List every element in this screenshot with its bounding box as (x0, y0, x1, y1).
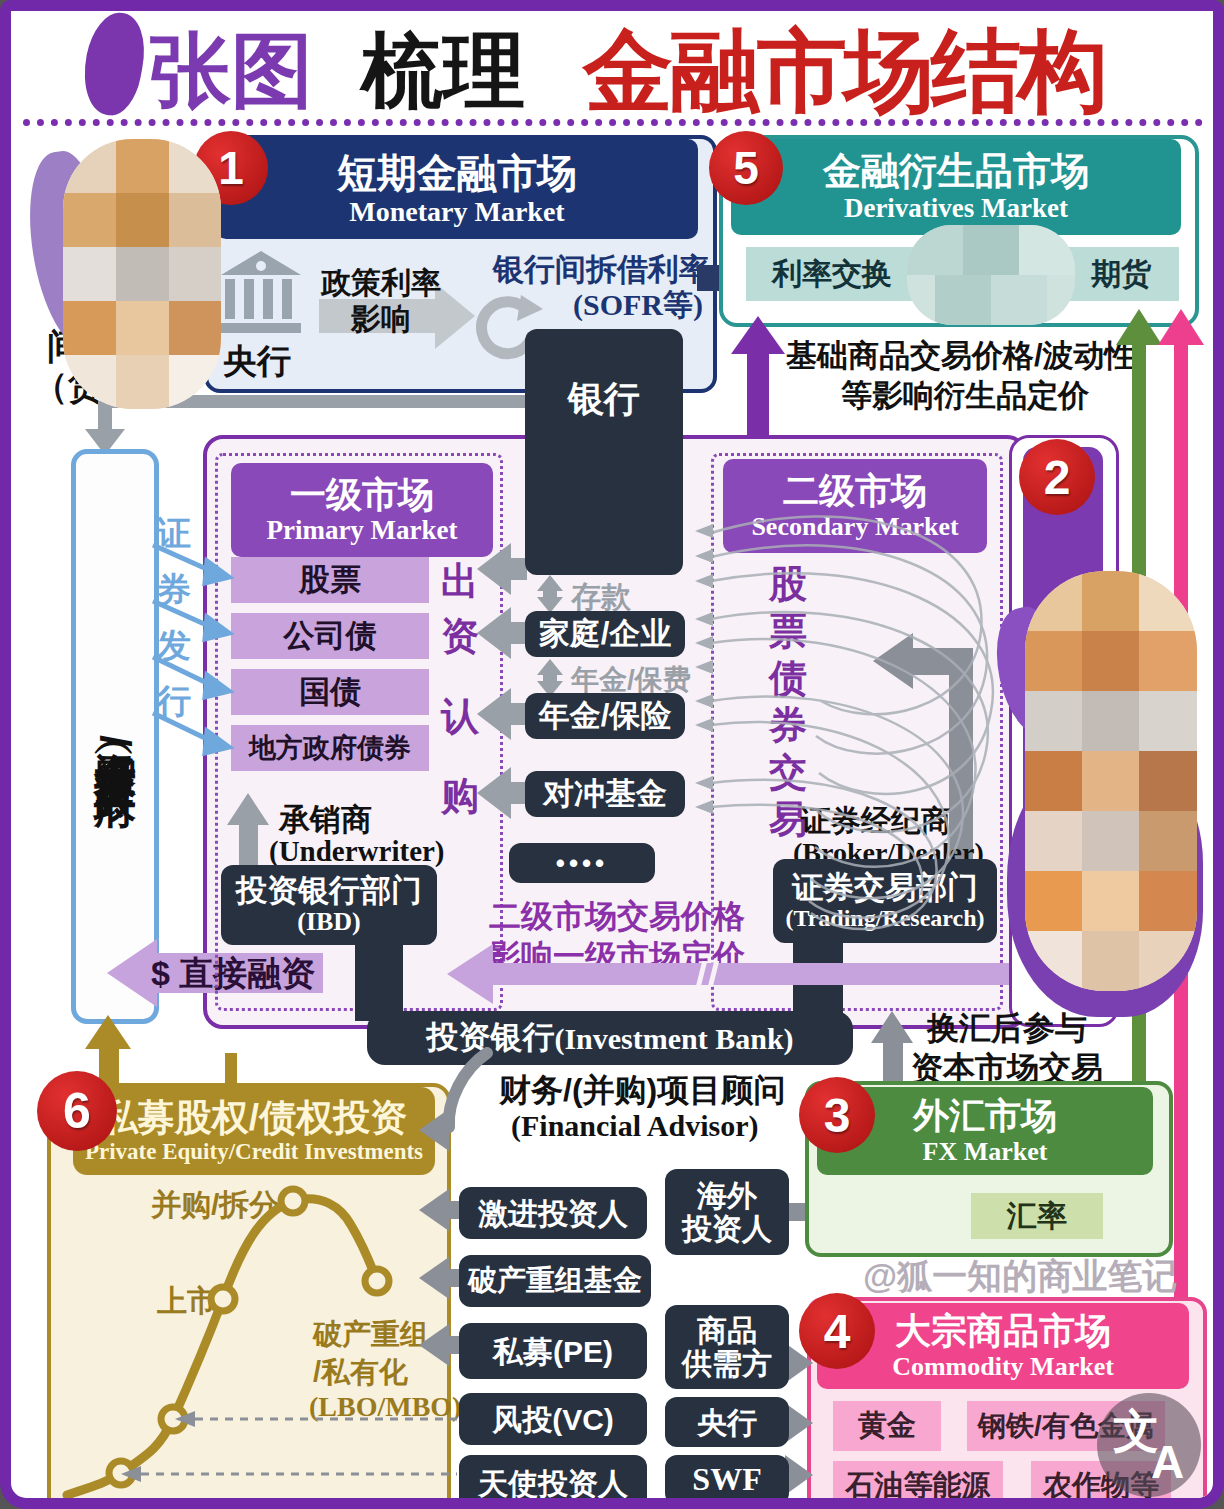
badge-4: 4 (799, 1293, 875, 1369)
invest-char-1: 出 (441, 556, 479, 607)
instrument-corp-bond: 公司债 (284, 615, 377, 657)
capital-to-derivatives-arrow-shaft (747, 352, 769, 437)
issue-char-1: 证 (157, 511, 191, 557)
pe-entry-arrow-1 (419, 1109, 449, 1151)
pe-to-demand-arrow-head (85, 1015, 131, 1049)
monetary-title-zh: 短期金融市场 (337, 150, 577, 196)
ibd-connector (355, 941, 403, 1021)
pe-entry-arrow-2 (419, 1189, 449, 1231)
primary-title-zh: 一级市场 (290, 474, 434, 515)
instrument-corp-bond-box: 公司债 (231, 613, 429, 659)
advisor-label-zh: 财务/(并购)项目顾问 (499, 1069, 785, 1113)
monetary-market-header: 短期金融市场 Monetary Market (216, 139, 698, 239)
secondary-market-header: 二级市场 Secondary Market (723, 459, 987, 553)
trading-label-en: (Trading/Research) (785, 905, 984, 931)
central-bank-label: 央行 (223, 339, 291, 385)
fx-to-derivatives-arrow-head (1116, 309, 1162, 345)
commodity-party-line1: 商品 (697, 1314, 757, 1347)
fx-rate-label: 汇率 (1007, 1196, 1067, 1237)
translate-en-glyph: A (1151, 1435, 1184, 1489)
swf-label: SWF (692, 1462, 761, 1497)
commodity-oil: 石油等能源 (846, 1466, 991, 1506)
hedge-fund-label: 对冲基金 (543, 777, 667, 811)
trade-char-2: 票 (769, 606, 807, 657)
pe-title-zh: 私募股权/债权投资 (101, 1097, 407, 1140)
interbank-rate-note: (SOFR等) (573, 285, 703, 326)
issue-char-3: 发 (157, 623, 191, 669)
pricing-arrow-head (447, 944, 493, 1004)
pe-label-lbo2: /私有化 (313, 1353, 408, 1393)
trading-label-zh: 证券交易部门 (792, 871, 978, 905)
fx-to-capital-arrow-head (871, 1011, 913, 1043)
instrument-stock-box: 股票 (231, 557, 429, 603)
instrument-stock: 股票 (299, 559, 361, 601)
commodity-title-en: Commodity Market (892, 1352, 1114, 1382)
commodity-entry-arrow-2 (785, 1403, 813, 1443)
commodity-party-line2: 供需方 (682, 1347, 772, 1380)
pe-label-lbo3: (LBO/MBO) (309, 1391, 461, 1423)
household-label: 家庭/企业 (539, 617, 672, 651)
pe-label-lbo1: 破产重组 (313, 1315, 429, 1355)
pricing-arrow-shaft (491, 963, 1011, 985)
secondary-title-zh: 二级市场 (783, 470, 927, 511)
translate-button[interactable]: 文 A (1097, 1393, 1201, 1497)
commodity-entry-arrow-3 (785, 1455, 813, 1495)
monetary-to-derivatives-arrow-shaft (697, 265, 721, 291)
title-part2: 梳理 (361, 17, 525, 127)
fund-demand-box: 资金需求方（企业/政府） (71, 449, 159, 1024)
invest-char-3: 认 (441, 691, 479, 742)
interest-rate-swap-label: 利率交换 (772, 254, 892, 295)
fx-title-en: FX Market (923, 1137, 1048, 1167)
commodity-to-derivatives-arrow-head (1158, 309, 1204, 345)
capital-to-derivatives-arrow-head (731, 316, 785, 354)
badge-5: 5 (709, 131, 783, 205)
fx-title-zh: 外汇市场 (913, 1095, 1057, 1136)
commodity-gold-box: 黄金 (833, 1401, 941, 1451)
direct-financing-arrow-head (107, 939, 157, 1007)
trade-char-4: 券 (769, 700, 807, 751)
badge-6: 6 (37, 1071, 117, 1151)
hedge-fund-box: 对冲基金 (525, 771, 685, 817)
derivatives-note-line2: 等影响衍生品定价 (841, 375, 1089, 417)
household-box: 家庭/企业 (525, 611, 685, 657)
instrument-muni-bond: 地方政府债券 (249, 730, 411, 766)
underwriter-arrow-shaft (239, 823, 258, 865)
futures-box: 期货 (1063, 247, 1179, 301)
others-label: •••• (556, 849, 608, 878)
secondary-title-en: Secondary Market (751, 512, 958, 542)
commodity-market-header: 大宗商品市场 Commodity Market (817, 1303, 1189, 1389)
investor-overseas-line2: 投资人 (682, 1212, 772, 1245)
pension-label: 年金/保险 (539, 699, 672, 733)
primary-title-en: Primary Market (266, 515, 457, 546)
pe-entry-arrow-3 (419, 1257, 449, 1299)
investor-overseas-box: 海外 投资人 (665, 1169, 789, 1255)
commodity-oil-box: 石油等能源 (833, 1461, 1003, 1509)
subscribe-arrow-3 (477, 688, 511, 740)
pe-entry-arrow-4 (419, 1324, 449, 1366)
derivatives-title-en: Derivatives Market (844, 193, 1068, 224)
investor-angel: 天使投资人 (478, 1467, 628, 1500)
trading-flow-horizontal (911, 648, 973, 675)
trading-flow-vertical (949, 671, 973, 861)
investor-activist: 激进投资人 (478, 1197, 628, 1230)
subscribe-arrow-2 (477, 607, 511, 659)
investment-bank-bar: 投资银行 (Investment Bank) (367, 1011, 853, 1065)
subscribe-arrow-4 (477, 767, 511, 819)
commodity-party-box: 商品 供需方 (665, 1305, 789, 1389)
pe-header: 私募股权/债权投资 Private Equity/Credit Investme… (73, 1087, 435, 1175)
issue-char-4: 行 (157, 679, 191, 725)
pricing-note-line1: 二级市场交易价格 (489, 895, 745, 939)
pe-title-en: Private Equity/Credit Investments (85, 1139, 423, 1165)
investor-pe: 私募(PE) (493, 1335, 613, 1368)
badge-2: 2 (1019, 439, 1095, 515)
fx-rate-box: 汇率 (971, 1193, 1103, 1239)
invest-char-2: 资 (441, 611, 479, 662)
swf-box: SWF (665, 1455, 789, 1505)
instrument-treasury-box: 国债 (231, 669, 429, 715)
watermark: @狐一知的商业笔记 (863, 1253, 1177, 1300)
fx-note-line1: 换汇后参与 (927, 1007, 1087, 1051)
investment-bank-label-en: (Investment Bank) (554, 1022, 793, 1055)
investor-angel-box: 天使投资人 (459, 1455, 647, 1509)
underwriter-label-en: (Underwriter) (269, 835, 445, 868)
monetary-title-en: Monetary Market (349, 196, 564, 228)
advisor-label-en: (Financial Advisor) (511, 1109, 759, 1143)
investor-pe-box: 私募(PE) (459, 1323, 647, 1379)
interest-rate-swap-box: 利率交换 (746, 247, 918, 301)
policy-rate-line1: 政策利率 (321, 263, 441, 304)
censored-mosaic-derivatives (907, 225, 1075, 325)
futures-label: 期货 (1091, 254, 1151, 295)
investor-activist-box: 激进投资人 (459, 1187, 647, 1239)
trade-char-1: 股 (769, 559, 807, 610)
instrument-treasury: 国债 (299, 671, 361, 713)
fund-demand-label: 资金需求方（企业/政府） (87, 719, 143, 755)
broker-label-zh: 证券经纪商 (801, 801, 951, 842)
ibd-label-zh: 投资银行部门 (236, 874, 422, 908)
central-bank-participant: 央行 (697, 1406, 757, 1439)
pe-label-ma: 并购/拆分 (151, 1185, 279, 1226)
badge-3: 3 (799, 1077, 875, 1153)
underwriter-arrow-head (227, 793, 269, 825)
investor-overseas-line1: 海外 (697, 1179, 757, 1212)
trading-box: 证券交易部门 (Trading/Research) (773, 859, 997, 943)
pe-label-ipo: 上市 (157, 1281, 217, 1322)
trade-char-5: 交 (769, 747, 807, 798)
bank-box: 银行 (525, 329, 683, 575)
invest-char-4: 购 (441, 771, 479, 822)
title-part1: 张图 (149, 17, 313, 127)
central-bank-participant-box: 央行 (665, 1397, 789, 1447)
subscribe-arrow-1 (477, 543, 511, 595)
dotted-separator (23, 119, 1203, 126)
investor-distressed: 破产重组基金 (468, 1265, 642, 1297)
policy-rate-line2: 影响 (351, 299, 411, 340)
investor-vc-box: 风投(VC) (459, 1393, 647, 1445)
censored-mosaic-fox (1025, 571, 1197, 991)
infographic-financial-market-structure: 张图 梳理 金融市场结构 短期金融市场 Monetary Market 1 央行… (0, 0, 1224, 1509)
trading-flow-arrow-head (873, 633, 913, 689)
derivatives-note-line1: 基础商品交易价格/波动性 (786, 335, 1136, 377)
censored-mosaic-top-left (63, 139, 221, 409)
commodity-gold: 黄金 (858, 1406, 916, 1446)
central-bank-icon (219, 249, 303, 337)
ibd-label-en: (IBD) (297, 908, 361, 937)
pe-top-connector (225, 1053, 237, 1085)
investor-vc: 风投(VC) (492, 1403, 614, 1436)
ibd-box: 投资银行部门 (IBD) (221, 865, 437, 945)
pension-box: 年金/保险 (525, 693, 685, 739)
others-box: •••• (509, 843, 655, 883)
derivatives-title-zh: 金融衍生品市场 (823, 150, 1089, 194)
brush-stroke-icon (76, 11, 153, 117)
derivatives-market-header: 金融衍生品市场 Derivatives Market (731, 139, 1181, 235)
issue-char-2: 券 (157, 567, 191, 613)
investor-distressed-box: 破产重组基金 (459, 1255, 651, 1307)
commodity-title-zh: 大宗商品市场 (895, 1310, 1111, 1351)
bank-label: 银行 (568, 379, 640, 419)
primary-market-header: 一级市场 Primary Market (231, 463, 493, 557)
title-part3: 金融市场结构 (583, 11, 1105, 133)
instrument-muni-bond-box: 地方政府债券 (231, 725, 429, 771)
investment-bank-label-zh: 投资银行 (426, 1020, 554, 1055)
trade-char-3: 债 (769, 653, 807, 704)
